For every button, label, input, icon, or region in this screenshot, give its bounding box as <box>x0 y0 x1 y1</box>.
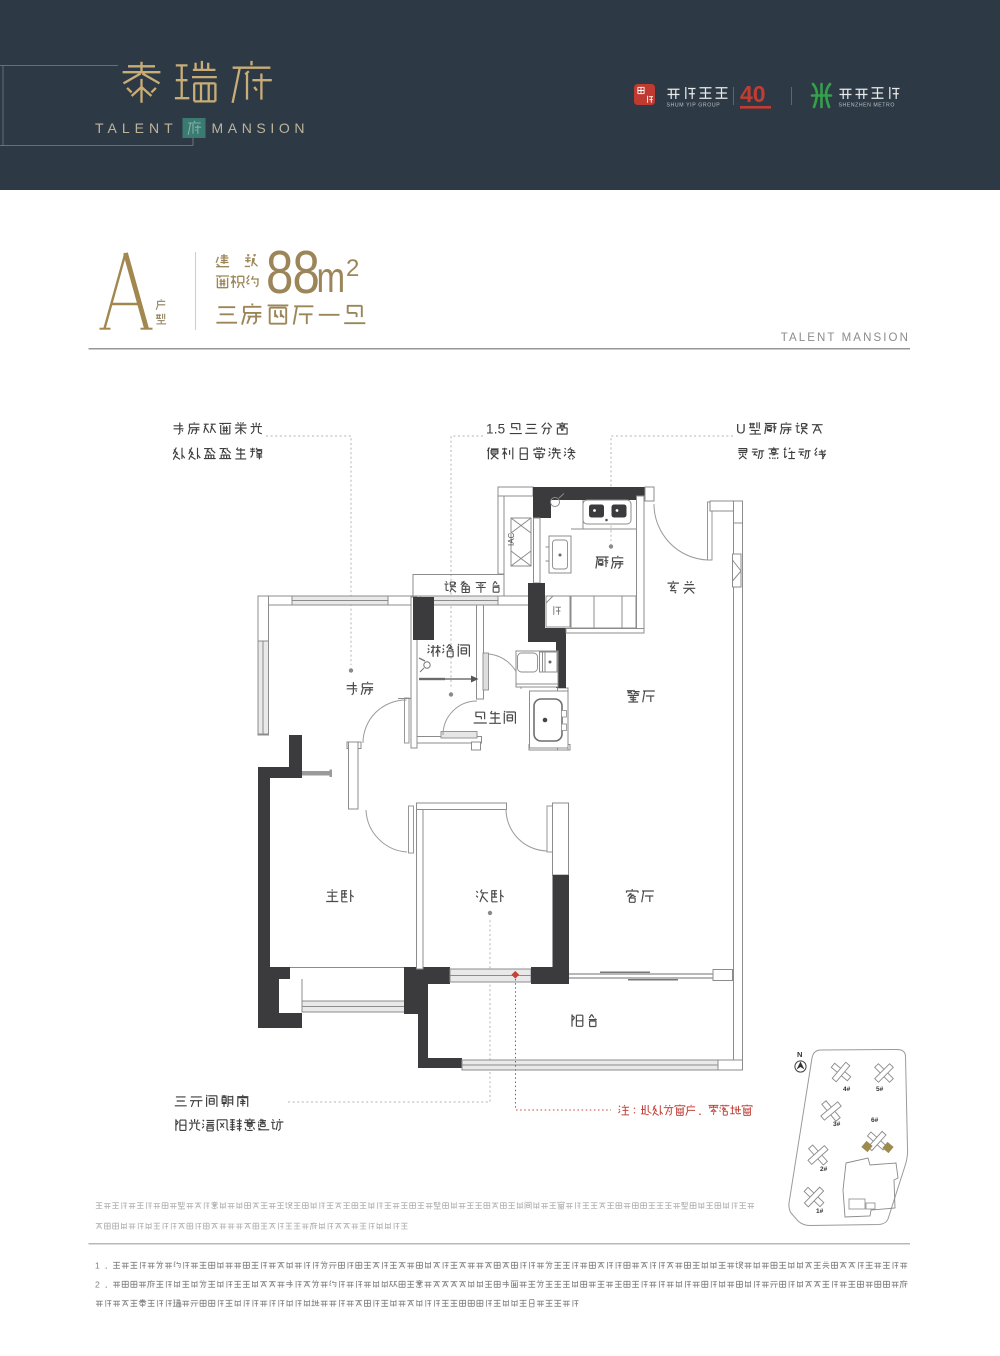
svg-text:5#: 5# <box>876 1086 884 1093</box>
svg-text:U: U <box>736 422 746 437</box>
svg-text:1.5: 1.5 <box>486 422 505 437</box>
svg-text:SHENZHEN METRO: SHENZHEN METRO <box>839 103 895 109</box>
svg-text:MANSION: MANSION <box>212 120 310 136</box>
svg-text:40: 40 <box>740 81 766 107</box>
svg-text:IAC: IAC <box>507 532 516 546</box>
svg-text:m: m <box>317 254 346 301</box>
svg-text:2: 2 <box>346 255 359 282</box>
svg-text:88: 88 <box>266 238 319 306</box>
svg-text:6#: 6# <box>871 1117 879 1124</box>
svg-text:2: 2 <box>95 1279 100 1289</box>
svg-text:TALENT: TALENT <box>95 120 178 136</box>
svg-text:TALENT MANSION: TALENT MANSION <box>781 332 910 344</box>
svg-text:1: 1 <box>95 1260 100 1270</box>
svg-text:1#: 1# <box>816 1208 824 1215</box>
svg-text:4#: 4# <box>843 1086 851 1093</box>
svg-text:3#: 3# <box>833 1121 841 1128</box>
svg-text:2#: 2# <box>820 1166 828 1173</box>
svg-text:SHUM YIP GROUP: SHUM YIP GROUP <box>667 103 721 109</box>
svg-text:N: N <box>797 1050 802 1059</box>
